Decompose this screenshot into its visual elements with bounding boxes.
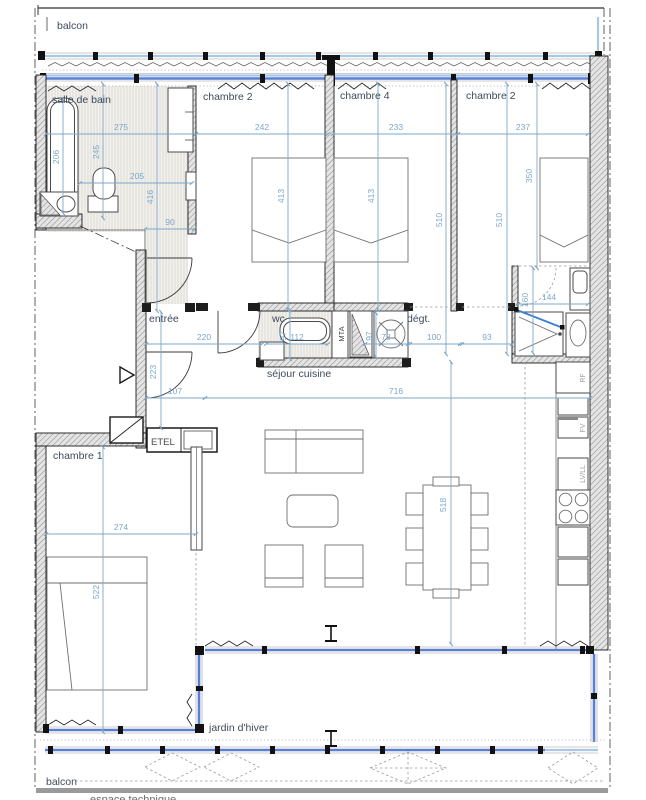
dim-90: 90 <box>165 217 175 227</box>
dim-78: 78 <box>381 332 391 342</box>
dining-chair <box>406 493 423 515</box>
bed-chambre2-right <box>540 158 588 262</box>
label-balcon-top: balcon <box>57 20 88 32</box>
balcony-top <box>38 5 604 70</box>
kitchen <box>525 362 590 650</box>
wall-niche <box>186 172 196 200</box>
sejour-door-swing <box>218 311 260 353</box>
dim-206: 206 <box>51 150 61 164</box>
wc-north-wall <box>258 303 334 311</box>
coffee-table <box>287 495 338 527</box>
dim-242: 242 <box>255 122 269 132</box>
steel-post-icon <box>325 626 337 641</box>
label-chambre2-left: chambre 2 <box>203 91 253 103</box>
dim-716: 716 <box>389 386 403 396</box>
living-furniture <box>265 430 488 598</box>
dim-510b: 510 <box>494 213 504 227</box>
dining-chair <box>433 589 459 598</box>
label-entree: entrée <box>149 313 179 325</box>
toilet-bowl <box>93 168 115 199</box>
dim-112: 112 <box>290 332 304 342</box>
label-lvll: LV/LL <box>580 465 587 483</box>
label-chambre4: chambre 4 <box>340 90 390 102</box>
label-wc: wc <box>271 313 285 325</box>
sofa <box>265 430 363 473</box>
label-fridge-rf: RF <box>580 373 587 382</box>
dim-522: 522 <box>91 585 101 599</box>
label-mta: MTA <box>337 326 346 341</box>
bed-chambre2-left <box>252 158 326 262</box>
steel-post-icon <box>325 731 337 746</box>
label-chambre2-right: chambre 2 <box>466 90 516 102</box>
entry-arrow <box>120 367 134 383</box>
slope-diamonds <box>145 752 598 784</box>
label-salle-de-bain: salle de bain <box>52 94 111 106</box>
wc-toilet <box>260 342 284 360</box>
dim-518: 518 <box>438 498 448 512</box>
dim-97-machine: 97 <box>364 331 374 341</box>
dining-chair <box>433 477 459 486</box>
ensuite <box>514 268 590 357</box>
balcony-bottom <box>36 740 608 793</box>
label-oven-fv: FV <box>580 423 587 432</box>
dining-chair <box>471 528 488 550</box>
dim-237: 237 <box>516 122 530 132</box>
label-chambre1: chambre 1 <box>53 450 103 462</box>
dining-chair <box>471 563 488 585</box>
dim-274: 274 <box>114 522 128 532</box>
dim-510a: 510 <box>434 213 444 227</box>
bed-chambre4 <box>334 158 408 262</box>
chambre4-chambre2r-wall <box>451 80 457 311</box>
dim-350: 350 <box>524 169 534 183</box>
label-sejour-cuisine: séjour cuisine <box>267 368 331 380</box>
dim-245: 245 <box>91 145 101 159</box>
north-facade <box>40 55 594 91</box>
dining-chair <box>406 528 423 550</box>
dim-413a: 413 <box>276 189 286 203</box>
bed-chambre1 <box>47 557 147 690</box>
dim-223: 223 <box>148 365 158 379</box>
chambre1-west-wall <box>36 446 46 732</box>
dining-chair <box>406 563 423 585</box>
east-exterior-wall <box>590 56 608 650</box>
bath-tall-cabinet <box>168 88 193 152</box>
floor-plan-page: 275 242 233 237 205 90 220 112 78 100 93… <box>0 0 646 800</box>
dim-220: 220 <box>197 332 211 342</box>
balcony-slab-edge <box>36 788 608 793</box>
label-degt: dégt. <box>407 313 430 325</box>
dim-275: 275 <box>114 122 128 132</box>
dim-233: 233 <box>389 122 403 132</box>
closet-north-wall <box>334 303 408 311</box>
bath-corridor-floor <box>146 232 188 304</box>
armchair-left <box>265 545 303 587</box>
dim-205: 205 <box>130 171 144 181</box>
bath-sink-basin <box>57 196 75 212</box>
label-balcon-bottom: balcon <box>46 776 77 788</box>
dining-chair <box>471 493 488 515</box>
dim-97-wc: 97 <box>278 331 288 341</box>
dim-144: 144 <box>542 292 556 302</box>
dim-107: 107 <box>168 386 182 396</box>
armchair-right <box>325 545 363 587</box>
label-espace-technique: espace technique <box>90 794 176 800</box>
dim-100: 100 <box>427 332 441 342</box>
label-jardin-dhiver: jardin d'hiver <box>208 722 269 734</box>
dim-413b: 413 <box>366 189 376 203</box>
dim-93: 93 <box>482 332 492 342</box>
dim-160: 160 <box>520 293 530 307</box>
floor-plan-svg: 275 242 233 237 205 90 220 112 78 100 93… <box>0 0 646 800</box>
dim-416: 416 <box>145 190 155 204</box>
label-etel: ETEL <box>151 437 175 448</box>
